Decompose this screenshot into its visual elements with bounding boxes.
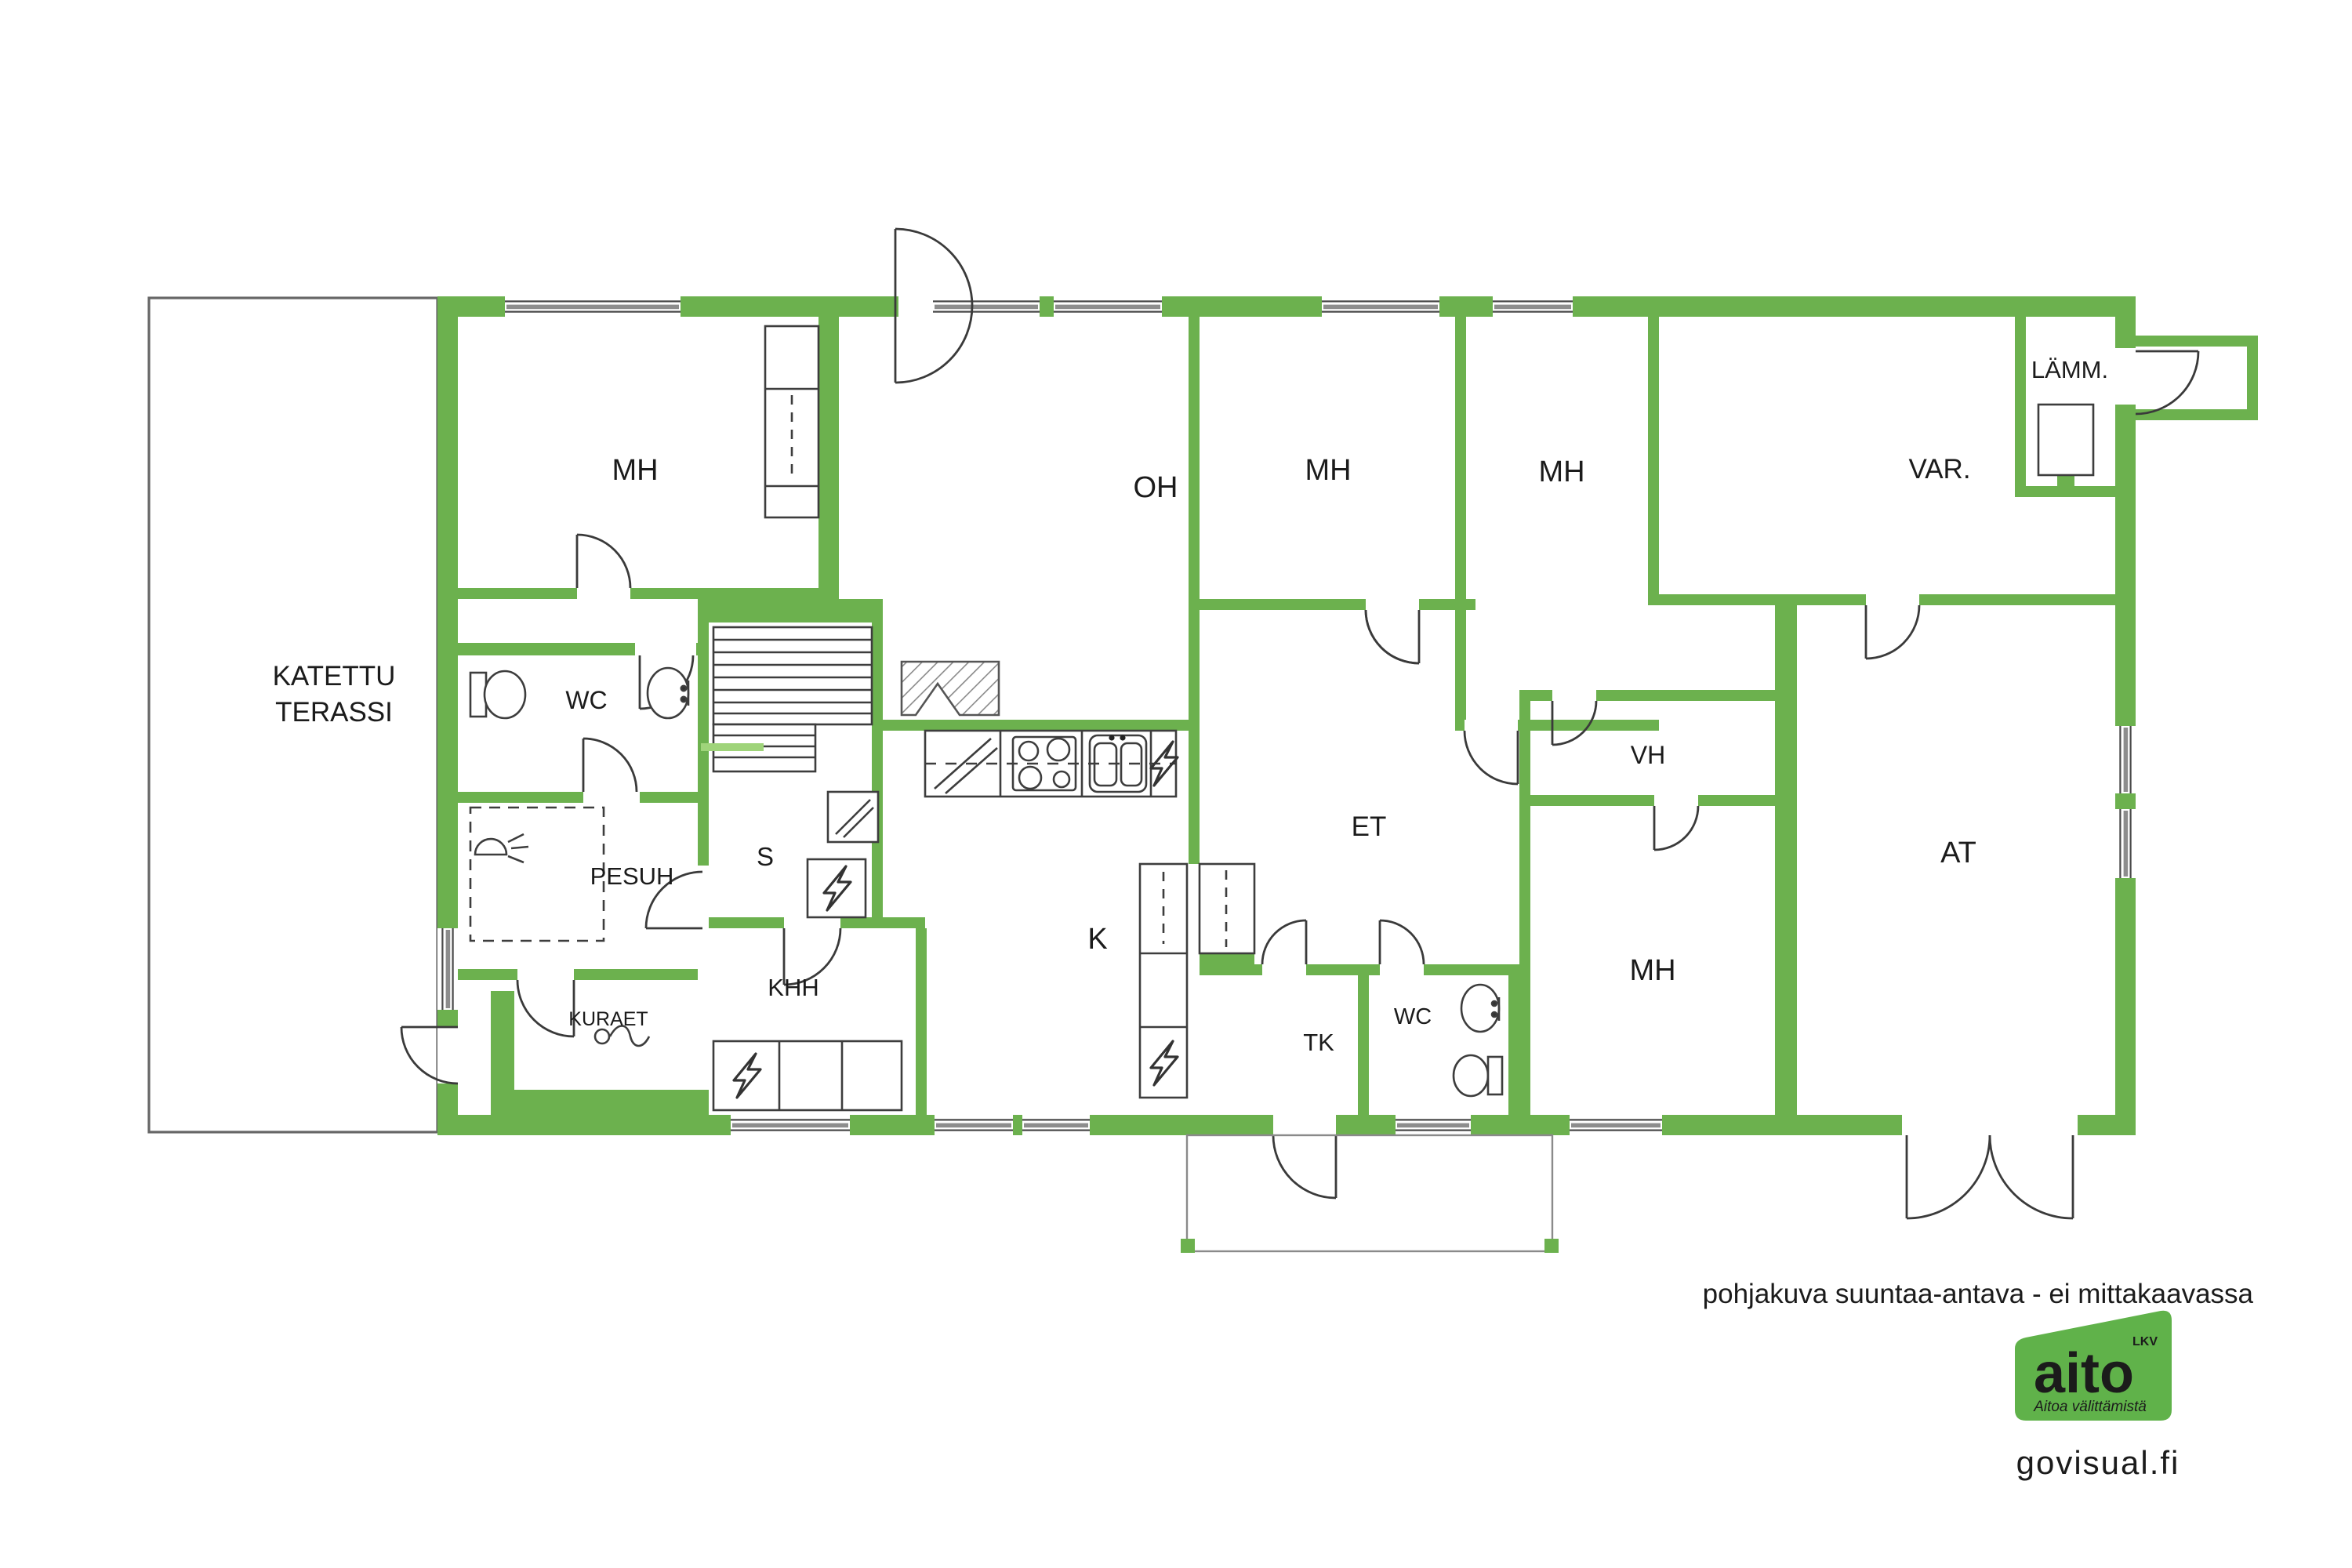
porch: [1181, 1135, 1559, 1253]
window-khh: [731, 1115, 850, 1135]
wall-openings: [437, 296, 2136, 1135]
label-terrace-1: KATETTU: [273, 661, 396, 691]
window-wc2: [1396, 1115, 1471, 1135]
closet-mh1: [765, 326, 818, 517]
label-vh: VH: [1631, 741, 1665, 769]
porch-post: [1181, 1239, 1195, 1253]
window-oh-1: [933, 296, 1040, 317]
door-lamm-exterior: [2136, 351, 2198, 414]
doors: [401, 229, 2198, 1218]
label-wc2: WC: [1394, 1004, 1432, 1029]
door-mh4: [1654, 806, 1698, 850]
door-var-at: [1866, 605, 1919, 659]
window-at-2: [2115, 809, 2136, 878]
label-terrace-2: TERASSI: [275, 697, 393, 728]
door-garage-right: [1990, 1135, 2073, 1218]
door-pesuh: [583, 739, 637, 792]
toilet-icon: [470, 671, 525, 718]
label-tk: TK: [1303, 1029, 1334, 1056]
fixtures: [470, 326, 2093, 1110]
label-khh: KHH: [768, 974, 818, 1001]
window-k-1: [935, 1115, 1013, 1135]
shower-icon: [470, 808, 604, 941]
heater-icon: [2038, 405, 2093, 475]
toilet-icon: [1454, 1055, 1502, 1096]
sink-icon: [1461, 985, 1499, 1032]
disclaimer-text: pohjakuva suuntaa-antava - ei mittakaava…: [1703, 1279, 2254, 1309]
label-wc1: WC: [565, 686, 607, 714]
windows: [437, 296, 2136, 1135]
label-kuraet: KURAET: [568, 1008, 648, 1030]
label-mh4: MH: [1629, 954, 1675, 987]
label-mh3: MH: [1538, 456, 1584, 488]
footer: pohjakuva suuntaa-antava - ei mittakaava…: [1703, 1279, 2254, 1481]
label-mh1: MH: [612, 454, 658, 487]
label-mh2: MH: [1305, 454, 1351, 487]
window-at-1: [2115, 726, 2136, 793]
label-oh: OH: [1134, 471, 1178, 504]
window-mh3: [1493, 296, 1573, 317]
floor-plan: KATETTU TERASSI MH OH MH MH VAR. LÄMM. W…: [0, 0, 2352, 1568]
aito-logo: aito LKV Aitoa välittämistä: [2015, 1311, 2172, 1421]
sauna-glass-strip: [701, 743, 764, 751]
label-s: S: [757, 842, 774, 871]
window-mh1: [505, 296, 681, 317]
kitchen-counter: [925, 731, 1178, 797]
sink-icon: [648, 668, 688, 718]
door-mh1: [577, 535, 630, 588]
door-tk: [1262, 920, 1306, 964]
label-at: AT: [1940, 837, 1976, 869]
door-kuraet: [517, 980, 574, 1036]
sauna-window: [828, 792, 878, 842]
wardrobe-et: [1200, 864, 1254, 953]
logo-brand: aito: [2034, 1342, 2134, 1405]
logo-tagline: Aitoa välittämistä: [2033, 1399, 2147, 1415]
door-tk-exterior: [1273, 1135, 1336, 1198]
window-mh4: [1570, 1115, 1662, 1135]
walls-exterior: [437, 296, 2258, 1135]
sauna-stove-icon: [808, 859, 866, 917]
window-pesuh: [437, 928, 458, 1010]
door-wc2: [1380, 920, 1424, 964]
door-garage-left: [1907, 1135, 1990, 1218]
label-pesuh: PESUH: [590, 862, 674, 890]
khh-counter: [713, 1041, 902, 1110]
door-mh2: [1366, 610, 1419, 663]
label-k: K: [1087, 923, 1107, 956]
window-mh2: [1322, 296, 1439, 317]
watermark-text: govisual.fi: [2016, 1444, 2180, 1481]
door-mh3: [1465, 731, 1518, 784]
logo-suffix: LKV: [2132, 1335, 2158, 1348]
fireplace-icon: [902, 662, 999, 715]
window-oh-2: [1054, 296, 1162, 317]
window-k-2: [1022, 1115, 1090, 1135]
walls-interior: [458, 317, 2136, 1135]
kitchen-tall-cabinet: [1140, 864, 1187, 1098]
label-lamm: LÄMM.: [2031, 356, 2108, 383]
label-et: ET: [1352, 811, 1387, 842]
label-var: VAR.: [1908, 454, 1970, 485]
porch-post: [1544, 1239, 1559, 1253]
